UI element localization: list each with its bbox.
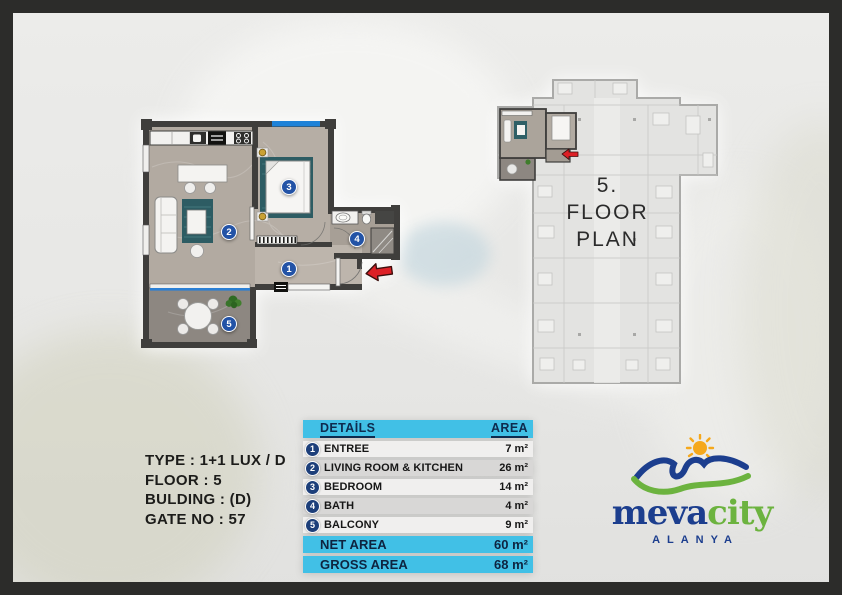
floor-number: 5. — [539, 172, 676, 199]
brand-name: mevacity — [597, 496, 787, 530]
entrance-arrow — [365, 262, 393, 282]
details-table: DETAİLS AREA 1 ENTREE 7 m² 2 LIVING ROOM… — [303, 420, 533, 576]
bath-sink — [336, 213, 350, 222]
row-label: BATH — [324, 500, 354, 512]
mevacity-logo: mevacity ALANYA — [597, 434, 787, 546]
unit-info: TYPE : 1+1 LUX / D FLOOR : 5 BULDING : (… — [145, 451, 286, 529]
table-row: 4 BATH 4 m² — [303, 498, 533, 514]
table-header: DETAİLS AREA — [303, 420, 533, 438]
total-area: 68 m² — [494, 557, 528, 572]
table-row: 2 LIVING ROOM & KITCHEN 26 m² — [303, 460, 533, 476]
row-label: LIVING ROOM & KITCHEN — [324, 462, 463, 474]
info-floor: FLOOR : 5 — [145, 471, 286, 491]
entrance-label — [274, 282, 288, 292]
row-label: BEDROOM — [324, 481, 382, 493]
row-badge: 3 — [305, 480, 320, 495]
logo-mark-icon — [630, 434, 754, 496]
gross-area-row: GROSS AREA 68 m² — [303, 556, 533, 573]
floor-word: FLOOR — [539, 199, 676, 226]
plan-marker-bath: 4 — [349, 231, 365, 247]
row-area: 7 m² — [505, 443, 528, 455]
header-area: AREA — [491, 421, 528, 438]
toilet — [362, 214, 370, 224]
background-pool — [398, 222, 490, 286]
appliance-label — [208, 132, 226, 145]
green-wave-icon — [634, 476, 748, 492]
row-badge: 1 — [305, 442, 320, 457]
row-badge: 5 — [305, 518, 320, 533]
plan-marker-bedroom: 3 — [281, 179, 297, 195]
net-area-row: NET AREA 60 m² — [303, 536, 533, 553]
total-label: NET AREA — [320, 537, 387, 552]
sofa — [155, 197, 177, 253]
row-label: ENTREE — [324, 443, 369, 455]
plan-marker-balcony: 5 — [221, 316, 237, 332]
row-area: 26 m² — [499, 462, 528, 474]
bedroom-window — [272, 121, 320, 127]
table-row: 3 BEDROOM 14 m² — [303, 479, 533, 495]
door — [250, 207, 254, 240]
info-gate: GATE NO : 57 — [145, 510, 286, 530]
blue-wave-icon — [636, 458, 746, 478]
lamp — [259, 149, 266, 156]
brand-meva: meva — [612, 493, 707, 533]
lamp — [259, 213, 266, 220]
entry-window — [288, 284, 330, 290]
brand-city: city — [707, 493, 772, 533]
info-type: TYPE : 1+1 LUX / D — [145, 451, 286, 471]
plan-marker-living: 2 — [221, 224, 237, 240]
row-area: 9 m² — [505, 519, 528, 531]
flyer-canvas: 1 2 3 4 5 — [0, 0, 842, 595]
header-details: DETAİLS — [320, 421, 375, 438]
plan-marker-entree: 1 — [281, 261, 297, 277]
table-row: 1 ENTREE 7 m² — [303, 441, 533, 457]
row-area: 14 m² — [499, 481, 528, 493]
row-area: 4 m² — [505, 500, 528, 512]
total-label: GROSS AREA — [320, 557, 408, 572]
wardrobe — [257, 236, 297, 244]
row-badge: 2 — [305, 461, 320, 476]
table-row: 5 BALCONY 9 m² — [303, 517, 533, 533]
sun-icon — [687, 435, 713, 458]
total-area: 60 m² — [494, 537, 528, 552]
info-building: BULDING : (D) — [145, 490, 286, 510]
row-badge: 4 — [305, 499, 320, 514]
window — [143, 145, 149, 172]
window — [143, 225, 149, 255]
row-label: BALCONY — [324, 519, 379, 531]
plan-word: PLAN — [539, 226, 676, 253]
floor-plan-title: 5. FLOOR PLAN — [539, 172, 676, 253]
bath-cabinet — [375, 211, 394, 224]
brand-city-name: ALANYA — [597, 534, 787, 546]
balcony-table — [185, 303, 212, 330]
kitchen-counter — [150, 131, 253, 145]
balcony-railing — [150, 288, 250, 291]
plant — [525, 159, 530, 164]
entrance-door — [336, 258, 340, 286]
